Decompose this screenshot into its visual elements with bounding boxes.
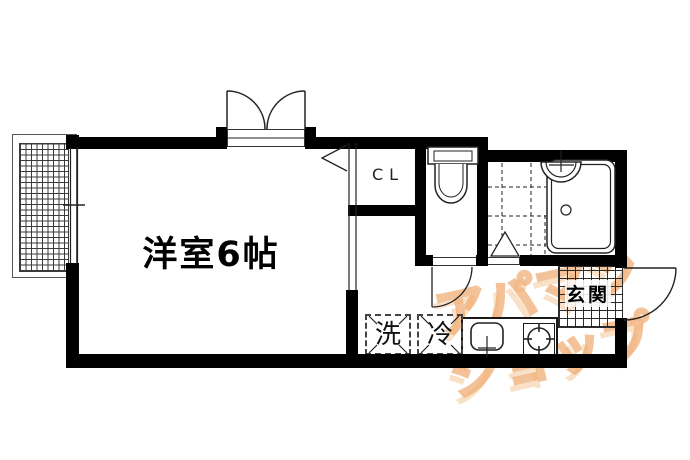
bathroom-folding-door — [491, 232, 519, 256]
stove-burner-icon — [524, 324, 554, 354]
appliance-corner-ticks — [369, 316, 459, 353]
toilet-door — [432, 267, 472, 307]
bathroom-tile-floor — [488, 163, 546, 255]
balcony-window — [63, 147, 85, 263]
sliding-partition — [349, 143, 356, 290]
floor-plan: アパマン ショップ 洗 冷 — [0, 0, 690, 460]
main-room-label: 洋室6帖 — [106, 226, 316, 277]
double-door-window — [227, 91, 305, 138]
fixture-linework — [0, 0, 690, 460]
closet-label: CL — [364, 165, 412, 184]
opening-chevron-icon — [322, 145, 347, 171]
entrance-door — [624, 268, 676, 320]
entrance-label: 玄関 — [565, 280, 611, 307]
kitchen-sink-icon — [471, 323, 503, 357]
toilet-icon — [428, 147, 478, 203]
